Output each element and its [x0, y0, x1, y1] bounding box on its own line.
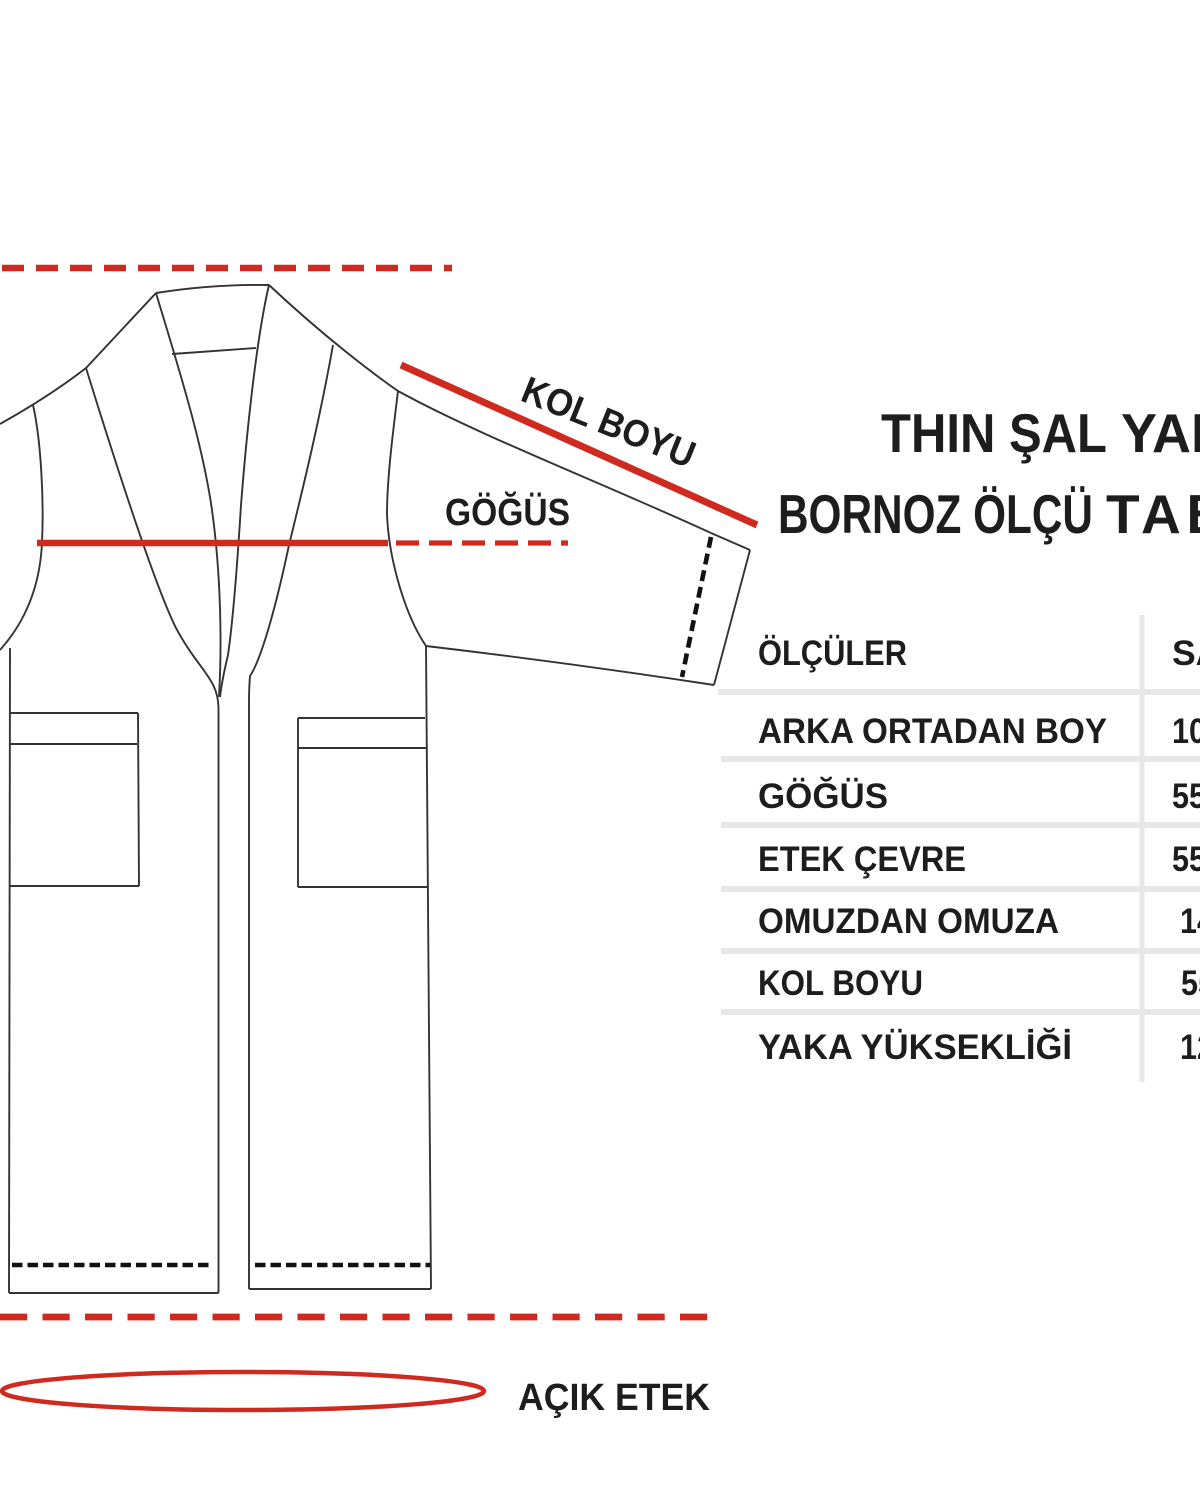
- svg-text:AÇIK ETEK: AÇIK ETEK: [518, 1377, 711, 1419]
- svg-text:12: 12: [1180, 1027, 1200, 1067]
- svg-text:ETEK ÇEVRE: ETEK ÇEVRE: [758, 839, 966, 879]
- svg-text:GÖĞÜS: GÖĞÜS: [445, 490, 570, 534]
- svg-text:100: 100: [1172, 711, 1200, 751]
- svg-text:55: 55: [1172, 839, 1200, 879]
- svg-text:ARKA ORTADAN BOY: ARKA ORTADAN BOY: [758, 711, 1107, 751]
- svg-text:OMUZDAN OMUZA: OMUZDAN OMUZA: [758, 901, 1059, 941]
- svg-text:BORNOZ ÖLÇÜ: BORNOZ ÖLÇÜ: [778, 483, 1093, 545]
- svg-text:KOL BOYU: KOL BOYU: [758, 963, 923, 1003]
- svg-text:ÖLÇÜLER: ÖLÇÜLER: [758, 633, 907, 673]
- svg-text:TABLOSU: TABLOSU: [1106, 483, 1200, 545]
- svg-text:YAKA: YAKA: [1121, 402, 1200, 464]
- svg-text:GÖĞÜS: GÖĞÜS: [758, 776, 888, 816]
- svg-text:YAKA YÜKSEKLİĞİ: YAKA YÜKSEKLİĞİ: [758, 1027, 1072, 1067]
- svg-text:THIN ŞAL: THIN ŞAL: [881, 402, 1107, 464]
- svg-text:SANTİM: SANTİM: [1172, 633, 1200, 673]
- svg-text:55: 55: [1172, 776, 1200, 816]
- svg-text:14: 14: [1180, 901, 1200, 941]
- svg-text:55: 55: [1181, 963, 1200, 1003]
